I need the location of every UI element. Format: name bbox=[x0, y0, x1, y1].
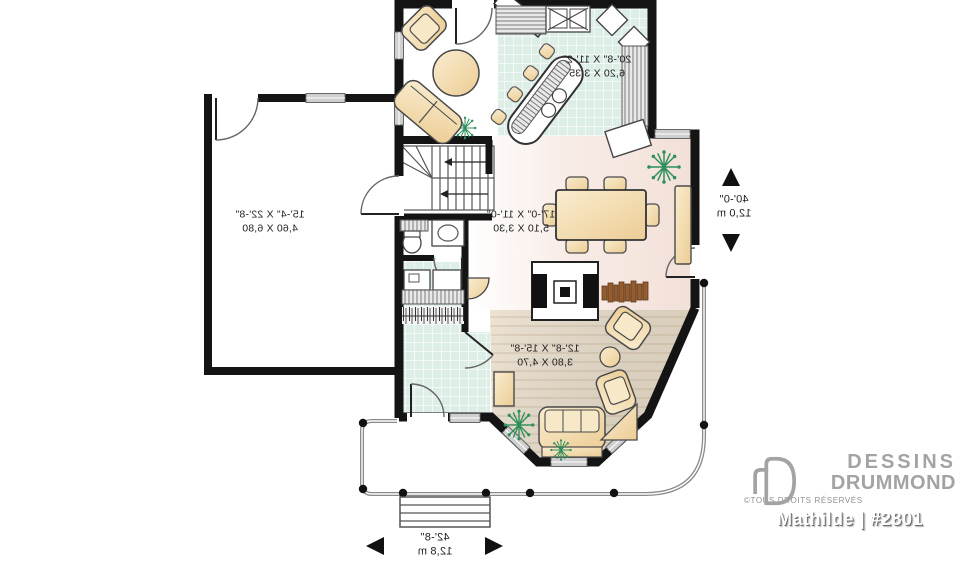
garage-dim-label: 15'-4" X 22'-8" 4,60 X 6,80 bbox=[235, 208, 304, 235]
entry-steps bbox=[400, 497, 490, 527]
brand-line1: DESSINS bbox=[818, 452, 956, 473]
kitchen-dim-label: 20'-8" X 11'-2" 6,20 X 3,35 bbox=[563, 53, 632, 80]
floor-plan: 20'-8" X 11'-2" 6,20 X 3,35 17'-0" X 11'… bbox=[0, 0, 960, 569]
washer bbox=[404, 270, 430, 290]
dryer bbox=[433, 270, 461, 290]
round-table bbox=[433, 50, 479, 96]
kitchen-dim-metric: 6,20 X 3,35 bbox=[563, 67, 632, 81]
depth-arrow-up bbox=[722, 168, 740, 186]
brand-names: DESSINS DRUMMOND bbox=[818, 452, 956, 494]
brand-line2: DRUMMOND bbox=[818, 473, 956, 494]
vanity bbox=[432, 220, 464, 246]
overall-depth-label: 40'-0" 12,0 m bbox=[717, 193, 752, 222]
garage-dim-imperial: 15'-4" X 22'-8" bbox=[235, 208, 304, 222]
window bbox=[655, 130, 690, 139]
dining-dim-imperial: 17'-0" X 11'-0" bbox=[487, 208, 556, 222]
window bbox=[395, 32, 404, 59]
brand-block: DESSINS DRUMMOND ©TOUS DROITS RÉSERVÉS M… bbox=[744, 452, 956, 530]
dining-dim-metric: 5,10 X 3,30 bbox=[487, 222, 556, 236]
plant-icon bbox=[647, 150, 681, 184]
garage-house-door bbox=[361, 176, 399, 214]
bath-shelf bbox=[400, 220, 428, 231]
staircase bbox=[402, 146, 494, 210]
living-dim-metric: 3,80 X 4,70 bbox=[510, 356, 579, 370]
width-arrow-left bbox=[366, 537, 384, 555]
laundry-counter bbox=[402, 290, 464, 304]
living-dim-label: 12'-8" X 15'-8" 3,80 X 4,70 bbox=[510, 342, 579, 369]
overall-width-metric: 12,8 m bbox=[418, 545, 453, 559]
garage-dim-metric: 4,60 X 6,80 bbox=[235, 222, 304, 236]
firewood bbox=[602, 281, 648, 302]
garage-entry-door bbox=[216, 98, 258, 140]
patio-door bbox=[456, 8, 492, 44]
dining-dim-label: 17'-0" X 11'-0" 5,10 X 3,30 bbox=[487, 208, 556, 235]
living-sofa bbox=[539, 407, 605, 449]
bay-window bbox=[551, 458, 587, 467]
side-table bbox=[600, 347, 620, 367]
kitchen-sink-dishwasher bbox=[546, 6, 590, 32]
living-dim-imperial: 12'-8" X 15'-8" bbox=[510, 342, 579, 356]
nook-armchair bbox=[399, 3, 450, 54]
vestibule-floor bbox=[463, 332, 490, 416]
window bbox=[450, 414, 480, 423]
width-arrow-right bbox=[485, 537, 503, 555]
overall-width-label: 42'-8" 12,8 m bbox=[418, 531, 453, 560]
bathroom bbox=[400, 220, 464, 253]
plant-icon bbox=[504, 410, 535, 441]
sofa-table bbox=[542, 447, 602, 457]
overall-depth-metric: 12,0 m bbox=[717, 207, 752, 221]
kitchen-counter-top bbox=[496, 6, 546, 34]
overall-depth-imperial: 40'-0" bbox=[717, 193, 752, 207]
window bbox=[306, 94, 345, 103]
fireplace bbox=[532, 262, 598, 320]
laundry-room bbox=[402, 270, 489, 324]
drummond-logo-icon bbox=[744, 452, 796, 510]
kitchen-dim-imperial: 20'-8" X 11'-2" bbox=[563, 53, 632, 67]
buffet bbox=[675, 186, 691, 264]
depth-arrow-down bbox=[722, 234, 740, 252]
plan-model-number: Mathilde | #2801 bbox=[744, 509, 956, 530]
overall-width-imperial: 42'-8" bbox=[418, 531, 453, 545]
dining-table bbox=[556, 190, 646, 240]
brand-row: DESSINS DRUMMOND bbox=[744, 452, 956, 494]
cabinet bbox=[494, 372, 514, 406]
plant-icon bbox=[550, 439, 571, 460]
